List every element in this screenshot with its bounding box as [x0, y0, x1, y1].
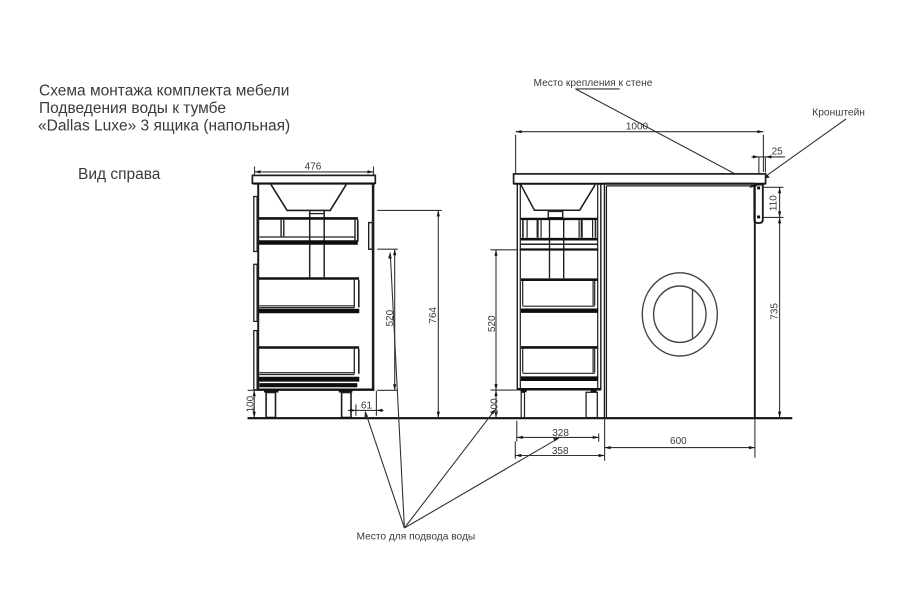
svg-text:600: 600 [670, 436, 687, 447]
svg-text:Подведения воды к тумбе: Подведения воды к тумбе [39, 100, 226, 117]
svg-text:764: 764 [428, 307, 439, 324]
svg-text:Место крепления к стене: Место крепления к стене [534, 78, 653, 89]
svg-text:1000: 1000 [626, 122, 649, 133]
svg-text:328: 328 [552, 428, 569, 439]
svg-text:100: 100 [246, 395, 257, 412]
svg-text:Место для подвода воды: Место для подвода воды [357, 532, 476, 543]
svg-text:110: 110 [768, 195, 779, 211]
svg-text:Кронштейн: Кронштейн [812, 107, 865, 118]
svg-text:25: 25 [772, 146, 784, 157]
svg-text:«Dallas Luxe» 3 ящика (напольн: «Dallas Luxe» 3 ящика (напольная) [38, 118, 290, 135]
svg-text:61: 61 [361, 401, 373, 412]
svg-text:Схема монтажа комплекта мебели: Схема монтажа комплекта мебели [39, 83, 289, 100]
svg-text:735: 735 [769, 303, 780, 320]
svg-text:520: 520 [487, 315, 498, 332]
svg-text:358: 358 [552, 446, 569, 457]
svg-text:Вид справа: Вид справа [78, 166, 161, 183]
svg-text:476: 476 [305, 162, 322, 173]
svg-text:520: 520 [385, 309, 396, 326]
